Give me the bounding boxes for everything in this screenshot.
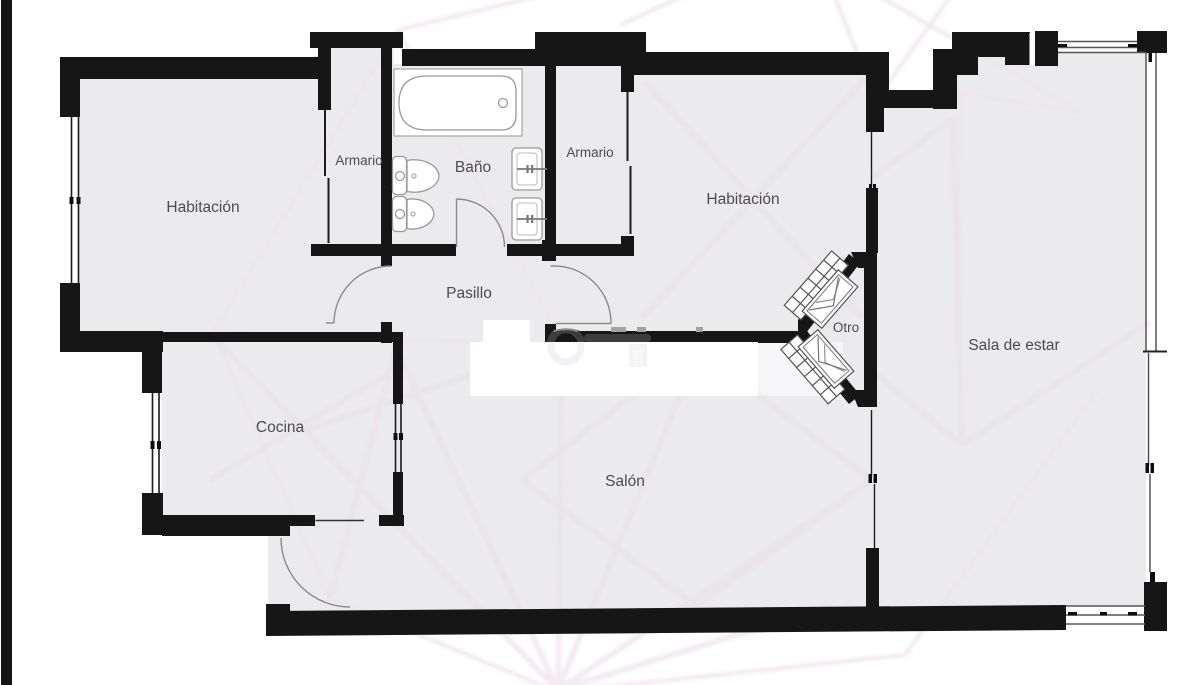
svg-text:Habitación: Habitación [706,191,779,208]
svg-text:Armario: Armario [335,153,382,168]
svg-text:Armario: Armario [566,145,613,160]
svg-text:Salón: Salón [605,473,645,490]
svg-text:Habitación: Habitación [166,199,239,216]
svg-text:Baño: Baño [455,159,491,176]
svg-text:Pasillo: Pasillo [446,285,492,302]
svg-text:Sala de estar: Sala de estar [968,337,1059,354]
svg-text:Cocina: Cocina [256,419,305,436]
svg-text:Otro: Otro [833,320,859,335]
